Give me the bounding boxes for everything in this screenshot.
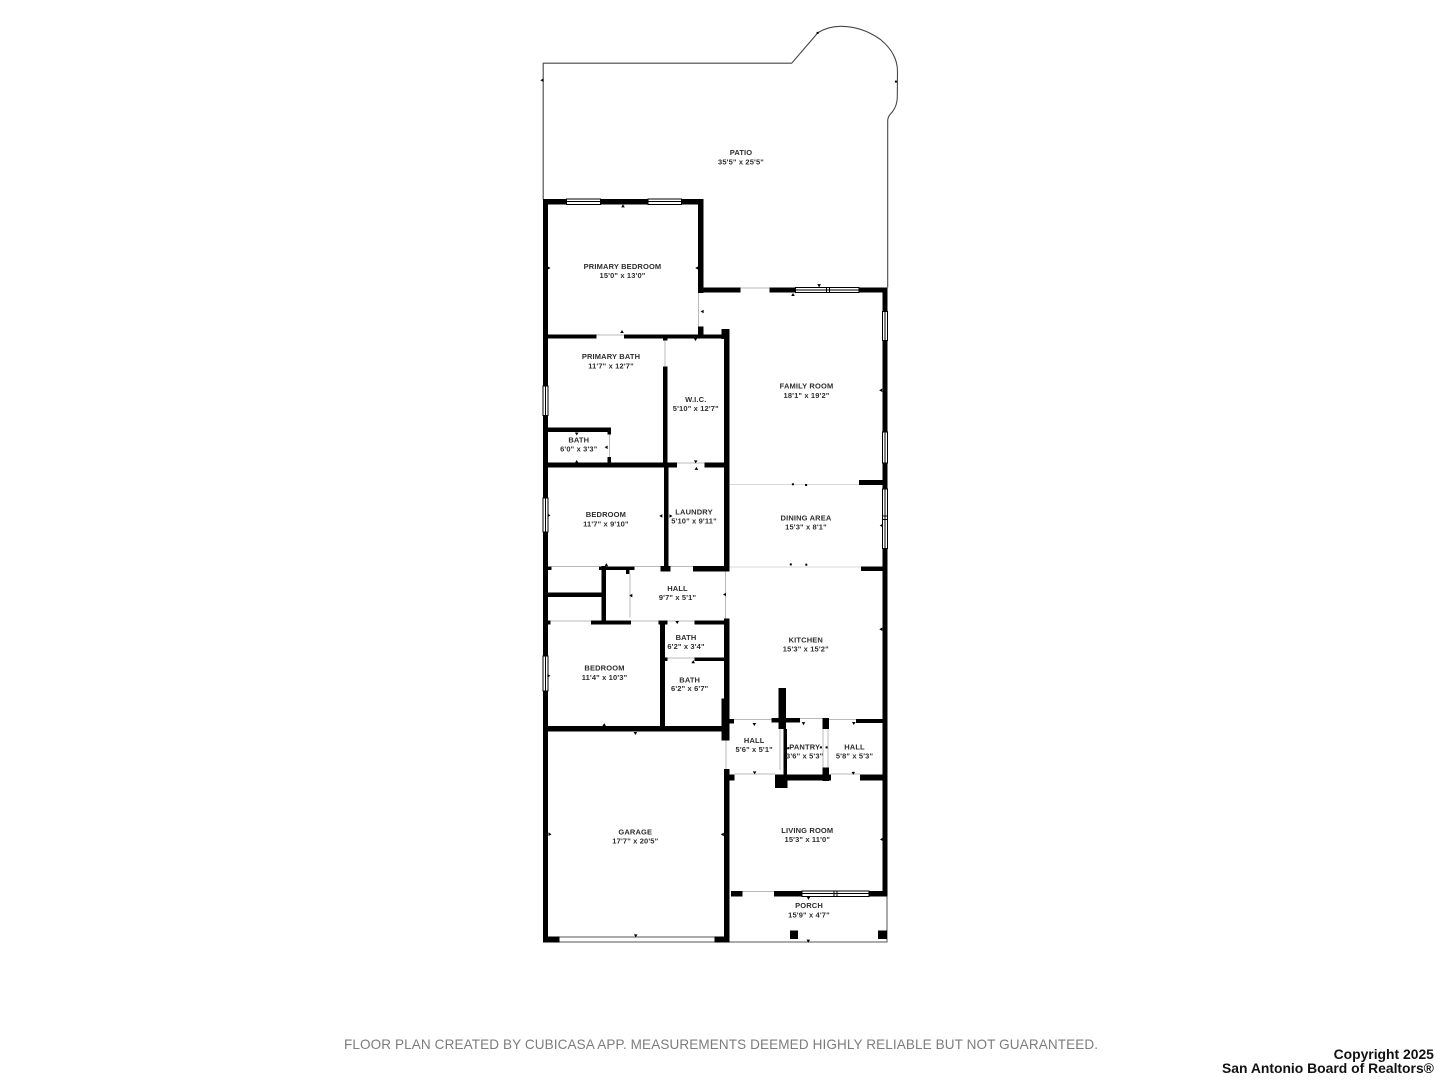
svg-text:15'3" x 8'1": 15'3" x 8'1" <box>785 523 827 532</box>
svg-text:11'7" x 12'7": 11'7" x 12'7" <box>588 361 634 370</box>
svg-text:3'6" x 5'3": 3'6" x 5'3" <box>786 752 824 761</box>
svg-text:6'2" x 6'7": 6'2" x 6'7" <box>671 684 709 693</box>
svg-text:5'8" x 5'3": 5'8" x 5'3" <box>836 751 874 760</box>
svg-text:PORCH: PORCH <box>795 901 823 910</box>
svg-text:9'7" x 5'1": 9'7" x 5'1" <box>659 593 697 602</box>
svg-text:15'0" x 13'0": 15'0" x 13'0" <box>600 271 646 280</box>
svg-text:PANTRY: PANTRY <box>789 743 820 752</box>
svg-text:BEDROOM: BEDROOM <box>584 664 624 673</box>
svg-text:6'2" x 3'4": 6'2" x 3'4" <box>667 642 705 651</box>
svg-text:15'9" x 4'7": 15'9" x 4'7" <box>788 910 830 919</box>
svg-text:35'5" x 25'5": 35'5" x 25'5" <box>718 157 764 166</box>
svg-text:GARAGE: GARAGE <box>618 828 652 837</box>
svg-text:6'0" x 3'3": 6'0" x 3'3" <box>560 445 598 454</box>
svg-text:LIVING ROOM: LIVING ROOM <box>781 826 833 835</box>
svg-text:15'3" x 15'2": 15'3" x 15'2" <box>783 644 829 653</box>
svg-text:BATH: BATH <box>676 633 697 642</box>
svg-text:HALL: HALL <box>744 736 765 745</box>
svg-text:LAUNDRY: LAUNDRY <box>675 507 712 516</box>
svg-text:BEDROOM: BEDROOM <box>586 510 626 519</box>
svg-text:DINING AREA: DINING AREA <box>781 513 832 522</box>
svg-text:18'1" x 19'2": 18'1" x 19'2" <box>784 391 830 400</box>
svg-text:11'7" x 9'10": 11'7" x 9'10" <box>583 519 629 528</box>
svg-text:11'4" x 10'3": 11'4" x 10'3" <box>582 673 628 682</box>
svg-text:KITCHEN: KITCHEN <box>789 635 823 644</box>
svg-text:5'6" x 5'1": 5'6" x 5'1" <box>736 745 774 754</box>
svg-text:HALL: HALL <box>667 584 688 593</box>
svg-text:17'7" x 20'5": 17'7" x 20'5" <box>612 837 658 846</box>
svg-text:W.I.C.: W.I.C. <box>685 395 706 404</box>
svg-text:HALL: HALL <box>844 742 865 751</box>
svg-text:PATIO: PATIO <box>730 148 753 157</box>
svg-text:PRIMARY BATH: PRIMARY BATH <box>582 352 640 361</box>
svg-text:5'10" x 12'7": 5'10" x 12'7" <box>673 404 719 413</box>
svg-text:5'10" x 9'11": 5'10" x 9'11" <box>671 516 717 525</box>
svg-text:BATH: BATH <box>679 675 700 684</box>
svg-text:15'3" x 11'0": 15'3" x 11'0" <box>785 835 831 844</box>
svg-text:BATH: BATH <box>568 435 589 444</box>
svg-text:PRIMARY BEDROOM: PRIMARY BEDROOM <box>584 262 662 271</box>
svg-text:FAMILY ROOM: FAMILY ROOM <box>780 382 834 391</box>
